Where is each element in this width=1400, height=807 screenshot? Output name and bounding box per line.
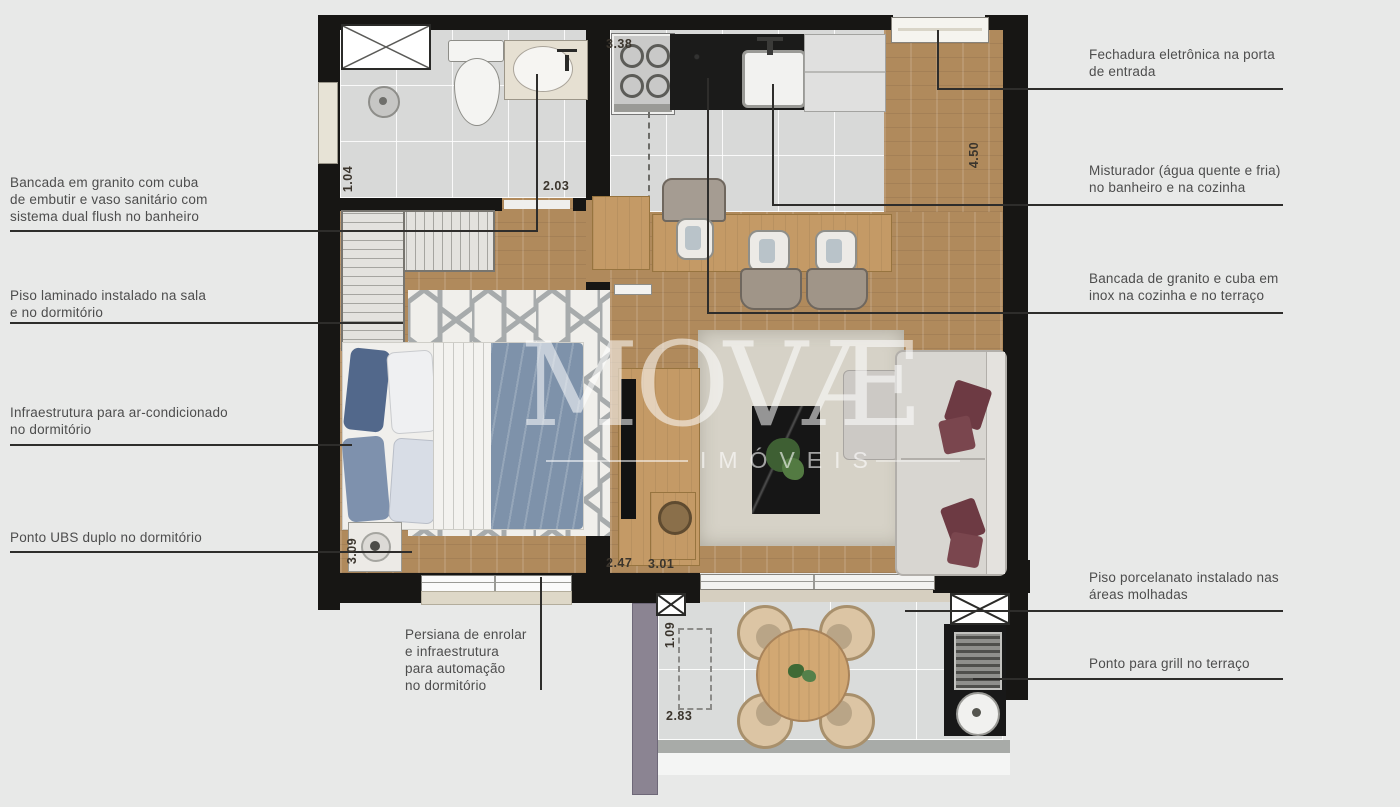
bedroom-door-leaf	[614, 284, 652, 295]
dining-chair	[806, 268, 868, 310]
shaft-symbol-bathroom	[341, 24, 431, 70]
leader-line	[772, 84, 774, 206]
bedroom-window-sill	[421, 591, 572, 605]
dimension-label: 3.09	[345, 529, 359, 573]
annotation-piso-porcelanato: Piso porcelanato instalado nas áreas mol…	[1089, 569, 1299, 603]
dimension-label: 2.47	[606, 556, 632, 570]
leader-line	[973, 678, 1283, 680]
dimension-label: 4.50	[967, 133, 981, 177]
dimension-label: 2.83	[666, 709, 692, 723]
bar-stool	[748, 230, 790, 272]
terrace-ledge	[652, 753, 1010, 775]
shaft-symbol-terrace-right	[950, 593, 1010, 625]
coffee-table	[752, 406, 820, 514]
leader-line	[536, 74, 538, 232]
dimension-label: 3.01	[648, 557, 674, 571]
grill-icon	[954, 632, 1002, 690]
leader-line	[937, 30, 939, 90]
desk-chair	[662, 178, 726, 222]
shower-head-icon	[368, 86, 400, 118]
entry-hall-floor	[884, 30, 1003, 212]
leader-line	[937, 88, 1283, 90]
tv-icon	[621, 379, 636, 519]
annotation-bancada-cozinha: Bancada de granito e cuba em inox na coz…	[1089, 270, 1299, 304]
bed-pillow	[386, 349, 438, 434]
dimension-label: 3.38	[606, 37, 632, 51]
terrace-table	[756, 628, 850, 722]
terrace-sliding-door	[700, 574, 935, 590]
wall-terrace-left	[632, 603, 658, 795]
leader-line	[772, 204, 1283, 206]
dining-chair	[740, 268, 802, 310]
wall-bathroom-bottom-jamb	[573, 198, 586, 211]
leader-line	[707, 78, 709, 314]
leader-line	[540, 577, 542, 690]
tv-side-cabinet	[650, 492, 696, 560]
dimension-label: 1.09	[663, 613, 677, 657]
dimension-label: 2.03	[543, 179, 569, 193]
leader-line	[707, 312, 1283, 314]
annotation-ponto-grill: Ponto para grill no terraço	[1089, 655, 1299, 672]
basket-icon	[658, 501, 692, 535]
sofa-pillow	[938, 415, 976, 455]
dimension-label: 1.04	[341, 157, 355, 201]
annotation-ar-condicionado: Infraestrutura para ar-condicionado no d…	[10, 404, 320, 438]
annotation-bancada-banheiro: Bancada em granito com cuba de embutir e…	[10, 174, 310, 225]
bed-duvet	[491, 343, 583, 529]
bed-pillow	[341, 435, 390, 522]
annotation-misturador: Misturador (água quente e fria) no banhe…	[1089, 162, 1299, 196]
terrace-projection	[678, 628, 712, 710]
leader-line	[10, 230, 538, 232]
annotation-persiana: Persiana de enrolar e infraestrutura par…	[405, 626, 540, 694]
sofa-pillow	[946, 531, 983, 568]
annotation-fechadura: Fechadura eletrônica na porta de entrada	[1089, 46, 1299, 80]
bed-sheet	[433, 343, 491, 529]
bed-pillow	[343, 347, 391, 433]
floor-plan-page: Bancada em granito com cuba de embutir e…	[0, 0, 1400, 807]
kitchen-sink	[742, 50, 806, 108]
bar-stool	[815, 230, 857, 272]
leader-line	[905, 610, 1283, 612]
grill-counter	[944, 624, 1006, 736]
sofa	[895, 350, 1007, 576]
bathroom-faucet-icon	[565, 55, 569, 71]
leader-line	[10, 444, 352, 446]
bathroom-vanity	[504, 40, 588, 100]
annotation-piso-laminado: Piso laminado instalado na sala e no dor…	[10, 287, 310, 321]
kitchen-cabinet-counter	[804, 34, 886, 112]
bedroom-window	[421, 575, 572, 592]
bed	[342, 342, 584, 530]
kitchen-side-cabinet	[592, 196, 650, 270]
annotation-ponto-ubs: Ponto UBS duplo no dormitório	[10, 529, 310, 546]
watermark-rule-left	[546, 460, 688, 462]
ottoman	[843, 370, 899, 460]
entry-door	[891, 17, 989, 43]
leader-line	[10, 322, 403, 324]
watermark-rule-right	[876, 460, 960, 462]
wall-left-vent	[318, 82, 338, 164]
